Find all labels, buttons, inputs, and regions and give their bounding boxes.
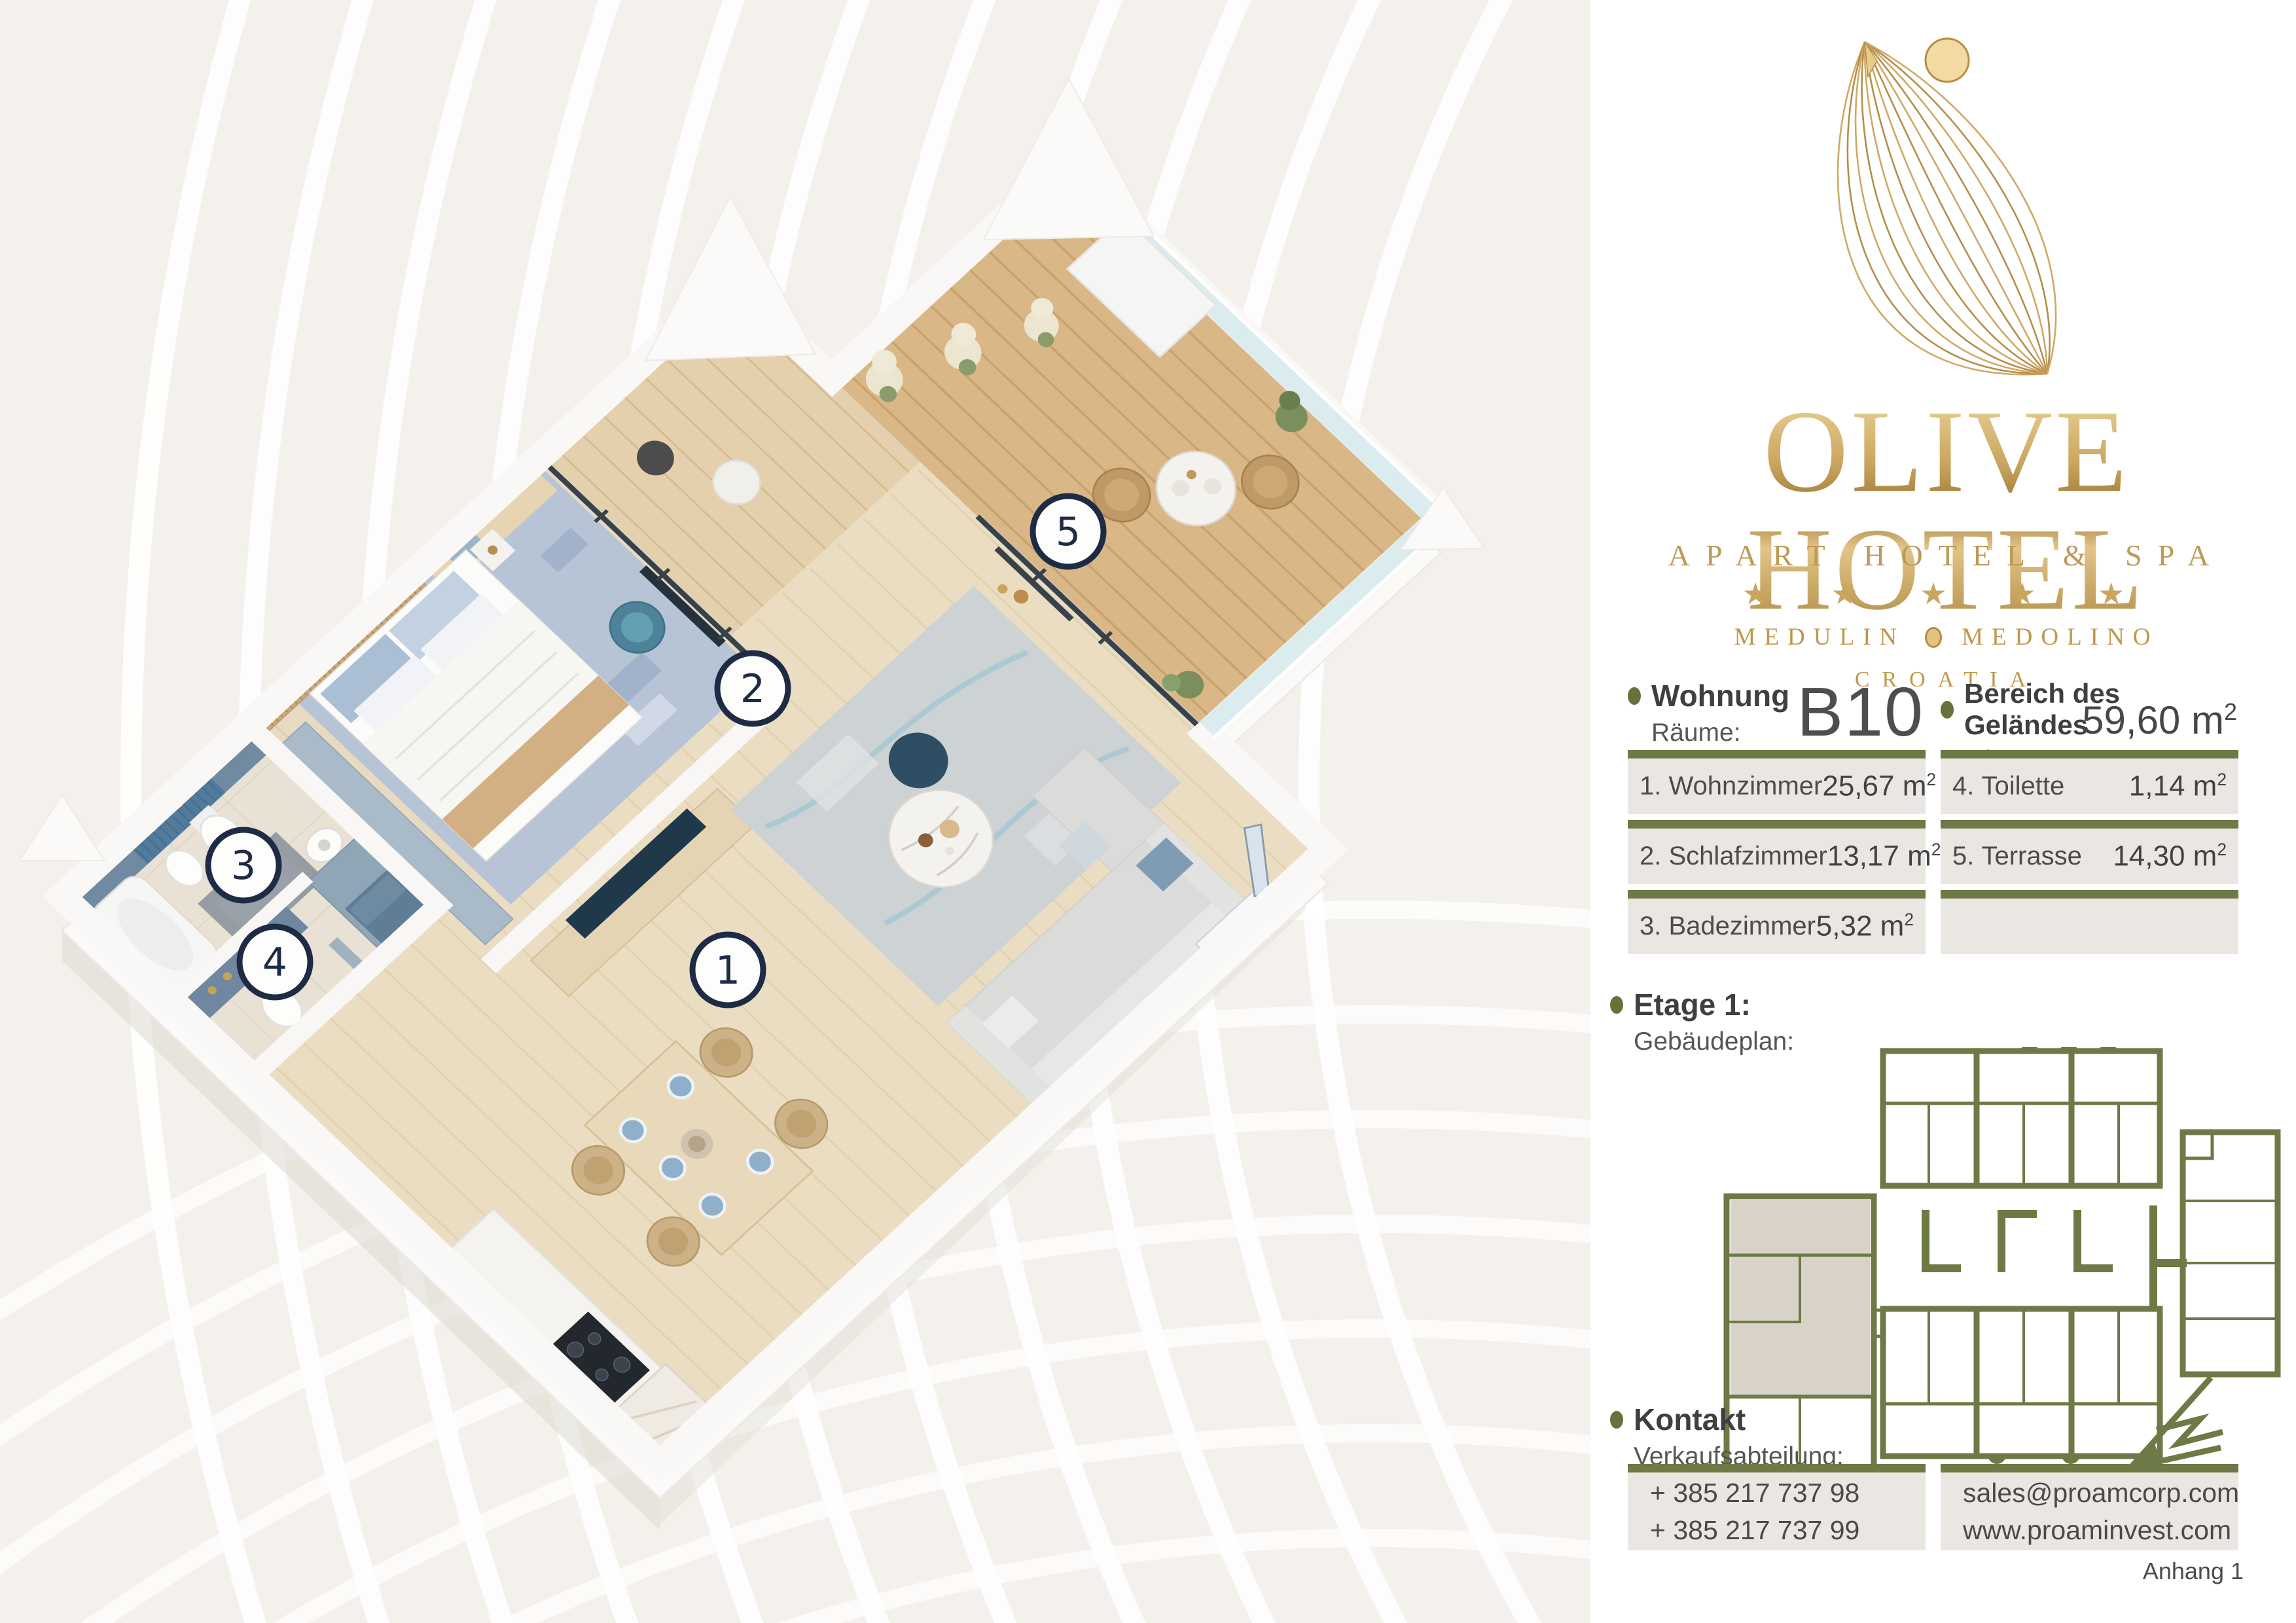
area-cell-toilette: 4. Toilette 1,14 m2: [1941, 750, 2238, 814]
website: www.proaminvest.com: [1963, 1515, 2216, 1546]
floor-label: Etage 1:: [1634, 987, 1751, 1022]
brand-subtitle: APART HOTEL & SPA: [1597, 538, 2296, 573]
star-rating: ★ ★ ★ ★ ★: [1597, 576, 2296, 611]
location-medolino: MEDOLINO: [1962, 623, 2159, 651]
logo-leaf-icon: [1838, 42, 2056, 374]
logo-sun-icon: [1926, 39, 1969, 82]
bullet-icon: [1941, 701, 1954, 719]
contact-web-cell: sales@proamcorp.com www.proaminvest.com: [1941, 1464, 2238, 1550]
area-cell-empty: [1941, 890, 2238, 954]
apartment-3d-plan: 1 2 3 4 5: [0, 0, 1590, 1623]
marker-3: 3: [208, 830, 279, 901]
email: sales@proamcorp.com: [1963, 1478, 2216, 1508]
location-medulin: MEDULIN: [1734, 623, 1906, 651]
phone-1: + 385 217 737 98: [1650, 1478, 1903, 1508]
marker-1: 1: [692, 935, 763, 1005]
svg-text:2: 2: [740, 666, 765, 712]
marker-4: 4: [240, 927, 310, 997]
contact-label: Kontakt: [1634, 1402, 1746, 1437]
apartment-render-panel: 1 2 3 4 5: [0, 0, 1590, 1623]
svg-text:1: 1: [715, 948, 740, 993]
svg-text:4: 4: [262, 940, 287, 986]
door-wedges: [1988, 1047, 2117, 1464]
marker-2: 2: [717, 653, 788, 724]
footnote: Anhang 1: [2047, 1558, 2244, 1585]
bullet-icon: [1610, 1411, 1623, 1429]
contact-phones-cell: + 385 217 737 98 + 385 217 737 99: [1628, 1464, 1926, 1550]
area-cell-wohnzimmer: 1. Wohnzimmer 25,67 m2: [1628, 750, 1926, 814]
bullet-icon: [1610, 996, 1623, 1014]
total-area-value: 59,60 m2: [2062, 698, 2237, 743]
unit-label: Wohnung: [1651, 678, 1789, 713]
svg-text:3: 3: [231, 843, 256, 889]
contact-header: Kontakt Verkaufsabteilung:: [1610, 1402, 1844, 1471]
phone-2: + 385 217 737 99: [1650, 1515, 1903, 1546]
marker-5: 5: [1033, 496, 1103, 567]
bullet-icon: [1628, 687, 1641, 705]
area-cell-schlafzimmer: 2. Schlafzimmer 13,17 m2: [1628, 820, 1926, 884]
area-cell-terrasse: 5. Terrasse 14,30 m2: [1941, 820, 2238, 884]
area-cell-badezimmer: 3. Badezimmer 5,32 m2: [1628, 890, 1926, 954]
olive-hotel-logo: [1813, 23, 2075, 389]
floor-header: Etage 1: Gebäudeplan:: [1610, 987, 1794, 1056]
gold-dot-icon: [1925, 627, 1942, 648]
unit-code: B10: [1793, 673, 1924, 752]
brand-location: MEDULIN MEDOLINO: [1597, 623, 2296, 651]
svg-text:5: 5: [1056, 509, 1081, 555]
